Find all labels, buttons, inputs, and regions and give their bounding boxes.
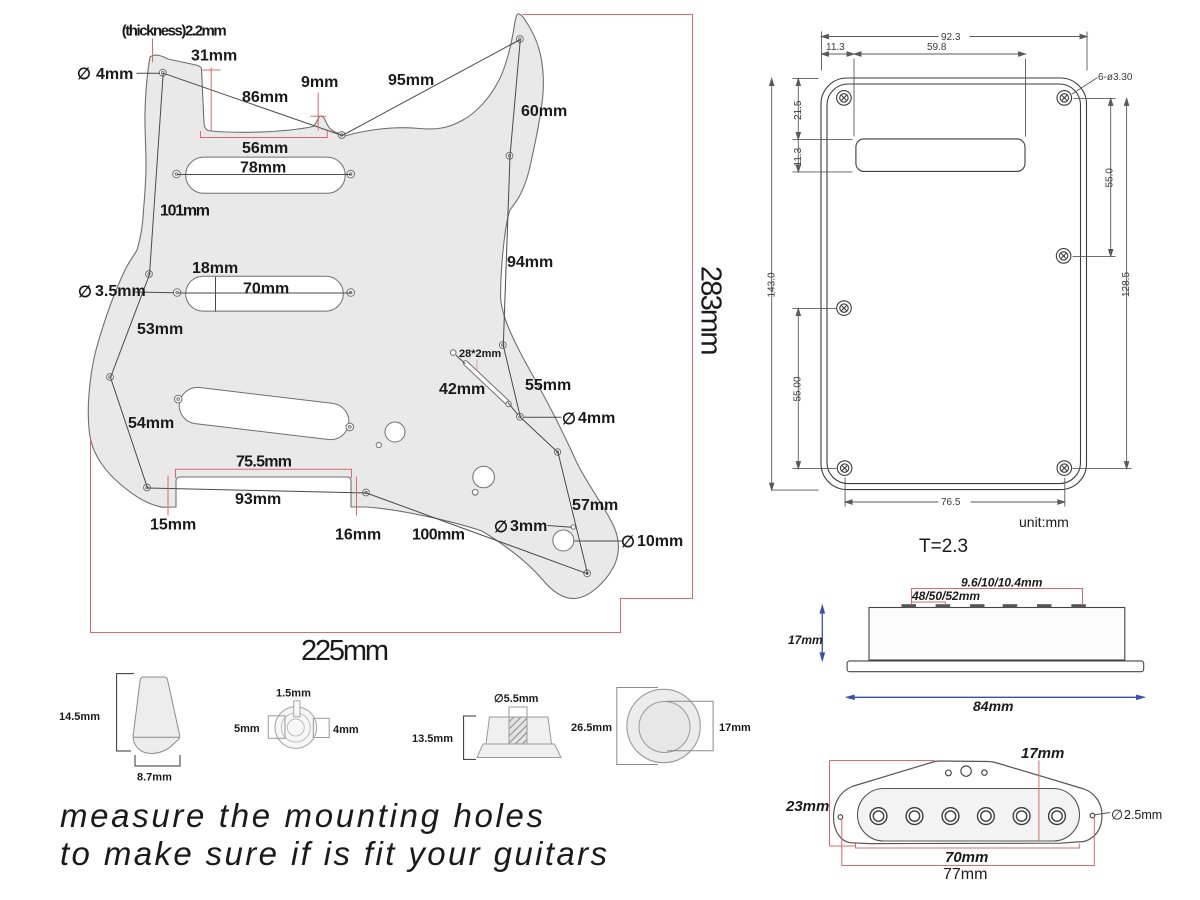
svg-text:4mm: 4mm [333,724,359,736]
svg-text:70mm: 70mm [945,849,988,866]
svg-text:86mm: 86mm [242,89,288,106]
svg-text:84mm: 84mm [973,698,1013,714]
svg-text:75.5mm: 75.5mm [236,454,292,471]
svg-text:unit:mm: unit:mm [1019,514,1069,530]
svg-text:11.3: 11.3 [793,147,804,166]
svg-text:55.00: 55.00 [793,376,804,401]
svg-text:4mm: 4mm [96,66,133,83]
svg-text:101mm: 101mm [160,203,210,220]
svg-text:57mm: 57mm [572,497,618,514]
svg-text:56mm: 56mm [242,140,288,157]
svg-text:28*2mm: 28*2mm [459,348,501,360]
svg-text:∅: ∅ [621,534,635,551]
svg-text:4mm: 4mm [578,410,615,427]
svg-text:128.5: 128.5 [1121,272,1132,297]
svg-text:42mm: 42mm [439,381,485,398]
svg-text:283mm: 283mm [695,266,727,356]
svg-text:54mm: 54mm [128,415,174,432]
svg-text:10mm: 10mm [637,533,683,550]
svg-text:6-ø3.30: 6-ø3.30 [1098,72,1133,83]
svg-text:225mm: 225mm [301,635,389,667]
svg-text:∅: ∅ [77,66,91,83]
svg-text:measure the mounting holes: measure the mounting holes [60,797,543,834]
svg-text:∅: ∅ [562,411,576,428]
svg-text:3.5mm: 3.5mm [95,283,146,300]
svg-text:∅: ∅ [494,519,508,536]
svg-text:55.0: 55.0 [1105,168,1116,188]
svg-text:55mm: 55mm [525,377,571,394]
svg-text:100mm: 100mm [412,527,465,544]
svg-text:9.6/10/10.4mm: 9.6/10/10.4mm [961,576,1043,590]
svg-text:21.5: 21.5 [793,100,804,120]
svg-text:3mm: 3mm [510,518,547,535]
svg-text:to make sure if is fit your gu: to make sure if is fit your guitars [60,835,607,872]
svg-text:∅: ∅ [78,284,92,301]
svg-text:5mm: 5mm [234,723,260,735]
svg-text:26.5mm: 26.5mm [571,722,612,734]
svg-text:95mm: 95mm [388,72,434,89]
svg-text:17mm: 17mm [788,633,823,647]
svg-text:143.0: 143.0 [767,272,778,297]
svg-text:17mm: 17mm [1021,745,1064,762]
svg-text:(thickness)2.2mm: (thickness)2.2mm [122,23,227,40]
svg-text:11.3: 11.3 [826,42,845,53]
svg-text:48/50/52mm: 48/50/52mm [911,589,980,603]
svg-text:9mm: 9mm [301,74,338,91]
svg-text:14.5mm: 14.5mm [59,711,100,723]
svg-text:18mm: 18mm [192,260,238,277]
svg-text:8.7mm: 8.7mm [137,772,172,784]
svg-text:94mm: 94mm [507,254,553,271]
svg-text:78mm: 78mm [240,160,286,177]
svg-text:17mm: 17mm [719,722,751,734]
svg-text:23mm: 23mm [785,798,829,815]
svg-text:∅: ∅ [1111,807,1123,823]
svg-text:59.8: 59.8 [927,42,947,53]
svg-text:31mm: 31mm [191,48,237,65]
svg-text:1.5mm: 1.5mm [276,688,311,700]
svg-text:15mm: 15mm [150,517,196,534]
svg-text:T=2.3: T=2.3 [919,536,968,557]
svg-text:16mm: 16mm [335,527,381,544]
svg-text:70mm: 70mm [243,281,289,298]
svg-text:53mm: 53mm [137,321,183,338]
svg-text:13.5mm: 13.5mm [412,733,453,745]
svg-text:60mm: 60mm [521,103,567,120]
svg-text:93mm: 93mm [235,491,281,508]
svg-text:2.5mm: 2.5mm [1124,808,1162,822]
svg-text:76.5: 76.5 [941,497,961,508]
svg-text:∅5.5mm: ∅5.5mm [494,693,539,705]
svg-text:77mm: 77mm [943,866,987,883]
